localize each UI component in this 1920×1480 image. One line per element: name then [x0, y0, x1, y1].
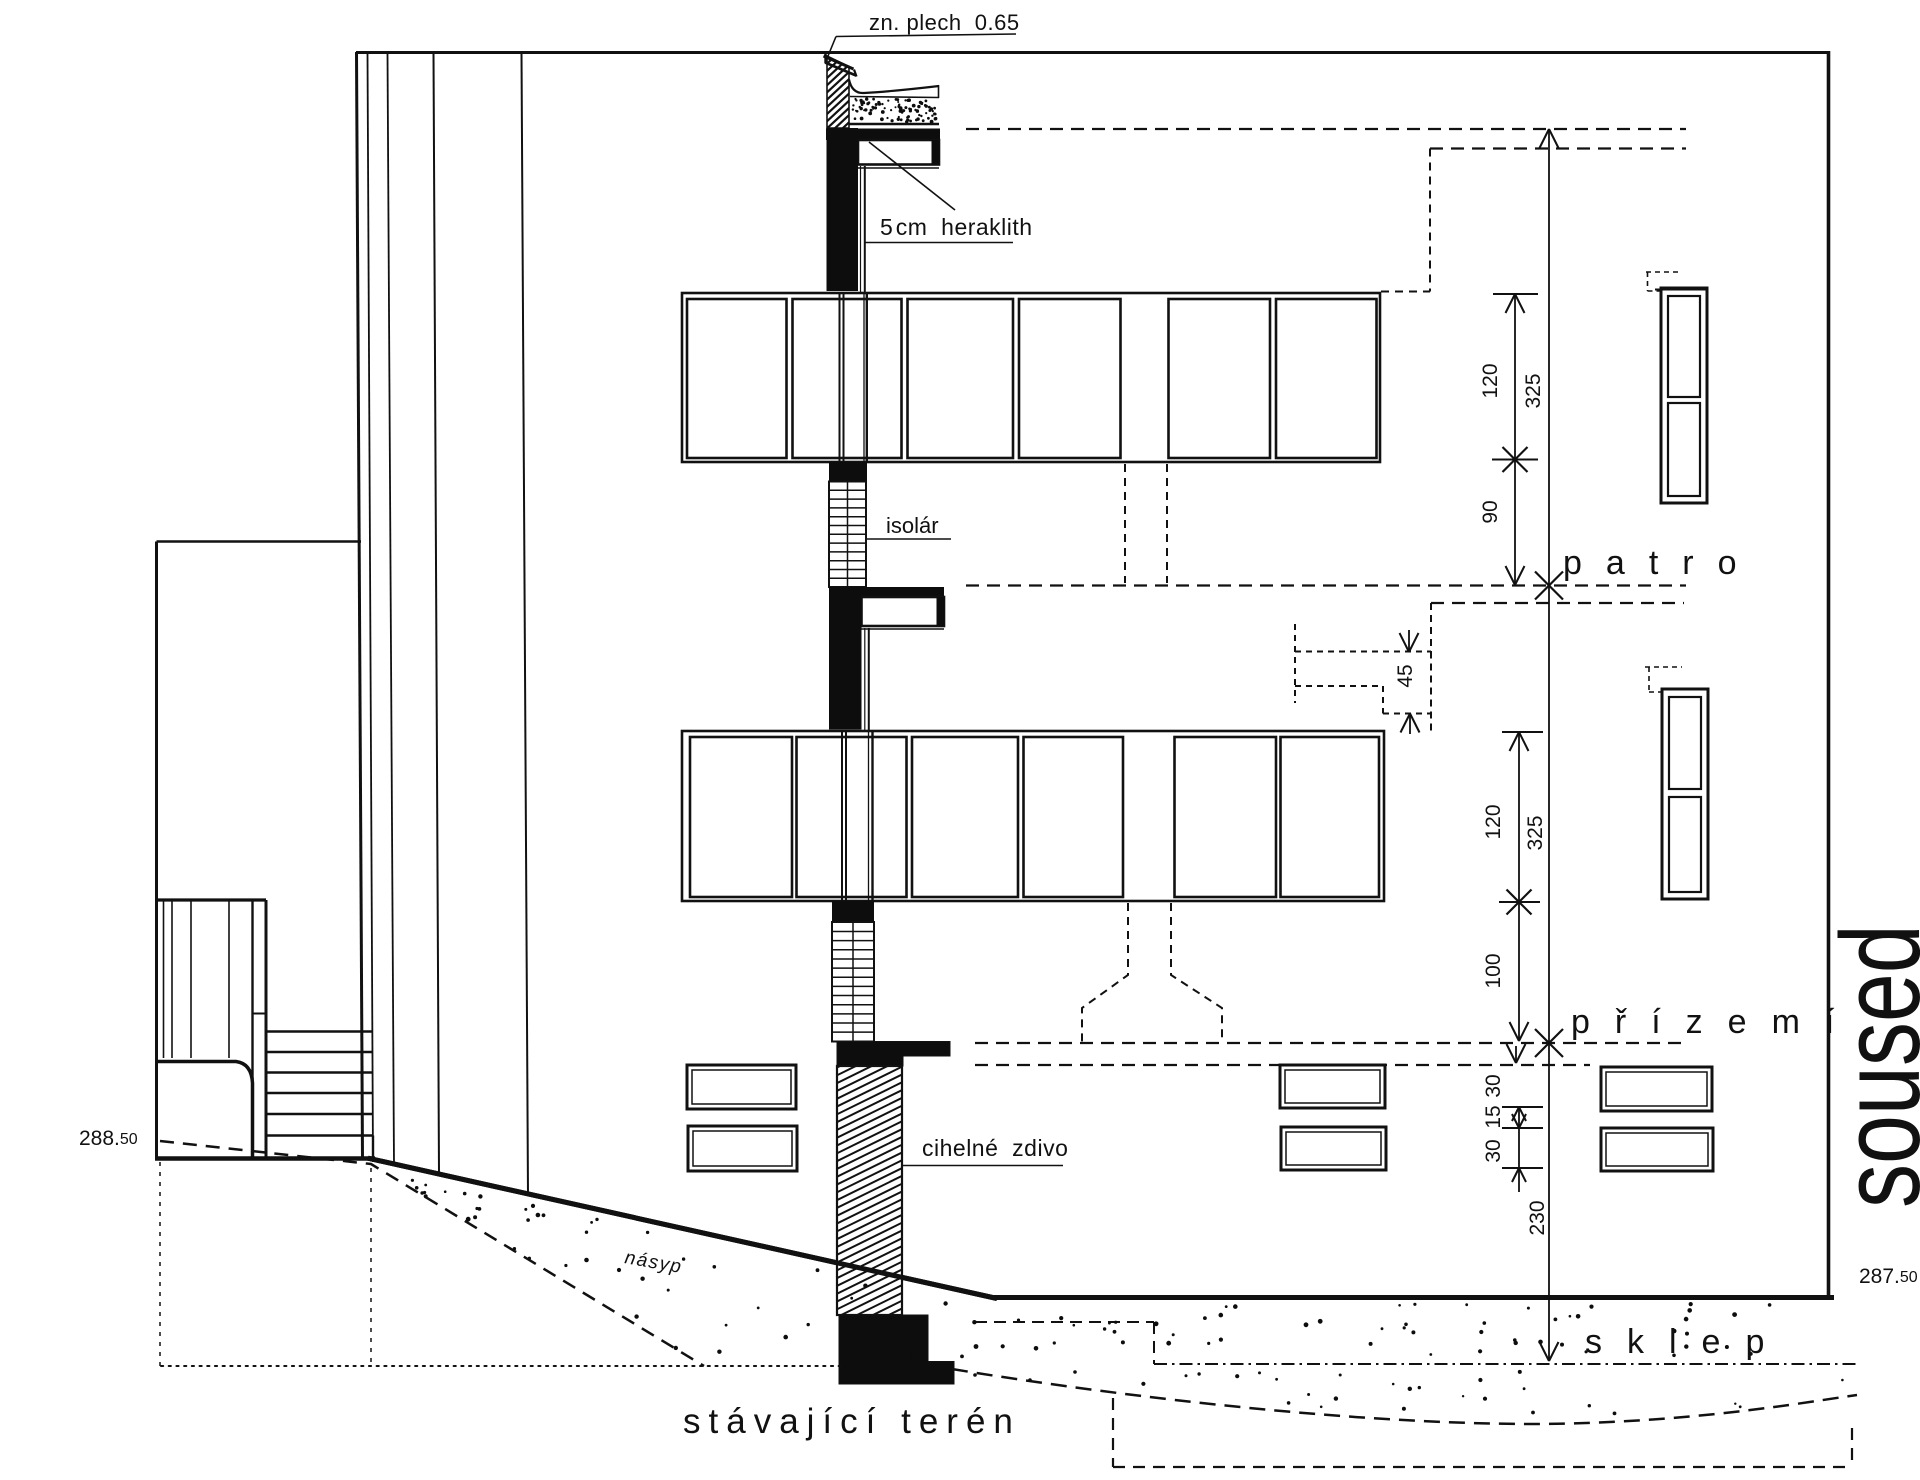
svg-text:soused: soused [1819, 924, 1920, 1208]
svg-text:120: 120 [1479, 363, 1502, 398]
svg-text:patro: patro [1563, 544, 1761, 582]
svg-text:násyp: násyp [623, 1247, 684, 1278]
svg-text:45: 45 [1394, 664, 1417, 687]
svg-text:288.50: 288.50 [79, 1127, 138, 1150]
svg-text:zn. plech 0.65: zn. plech 0.65 [869, 10, 1020, 35]
svg-text:15: 15 [1482, 1105, 1505, 1128]
svg-text:30: 30 [1482, 1139, 1505, 1162]
svg-text:sklep: sklep [1585, 1323, 1789, 1361]
svg-text:100: 100 [1482, 953, 1505, 988]
svg-text:230: 230 [1526, 1200, 1549, 1235]
svg-text:287.50: 287.50 [1859, 1265, 1918, 1288]
svg-text:isolár: isolár [886, 513, 939, 538]
svg-text:325: 325 [1524, 815, 1547, 850]
svg-text:325: 325 [1522, 373, 1545, 408]
svg-text:přízemí: přízemí [1571, 1003, 1859, 1041]
svg-text:stávající terén: stávající terén [683, 1402, 1021, 1441]
svg-text:120: 120 [1482, 804, 1505, 839]
svg-text:cihelné zdivo: cihelné zdivo [922, 1135, 1068, 1161]
svg-text:90: 90 [1479, 500, 1502, 523]
svg-text:5 cm heraklith: 5 cm heraklith [880, 214, 1033, 240]
svg-text:30: 30 [1482, 1074, 1505, 1097]
